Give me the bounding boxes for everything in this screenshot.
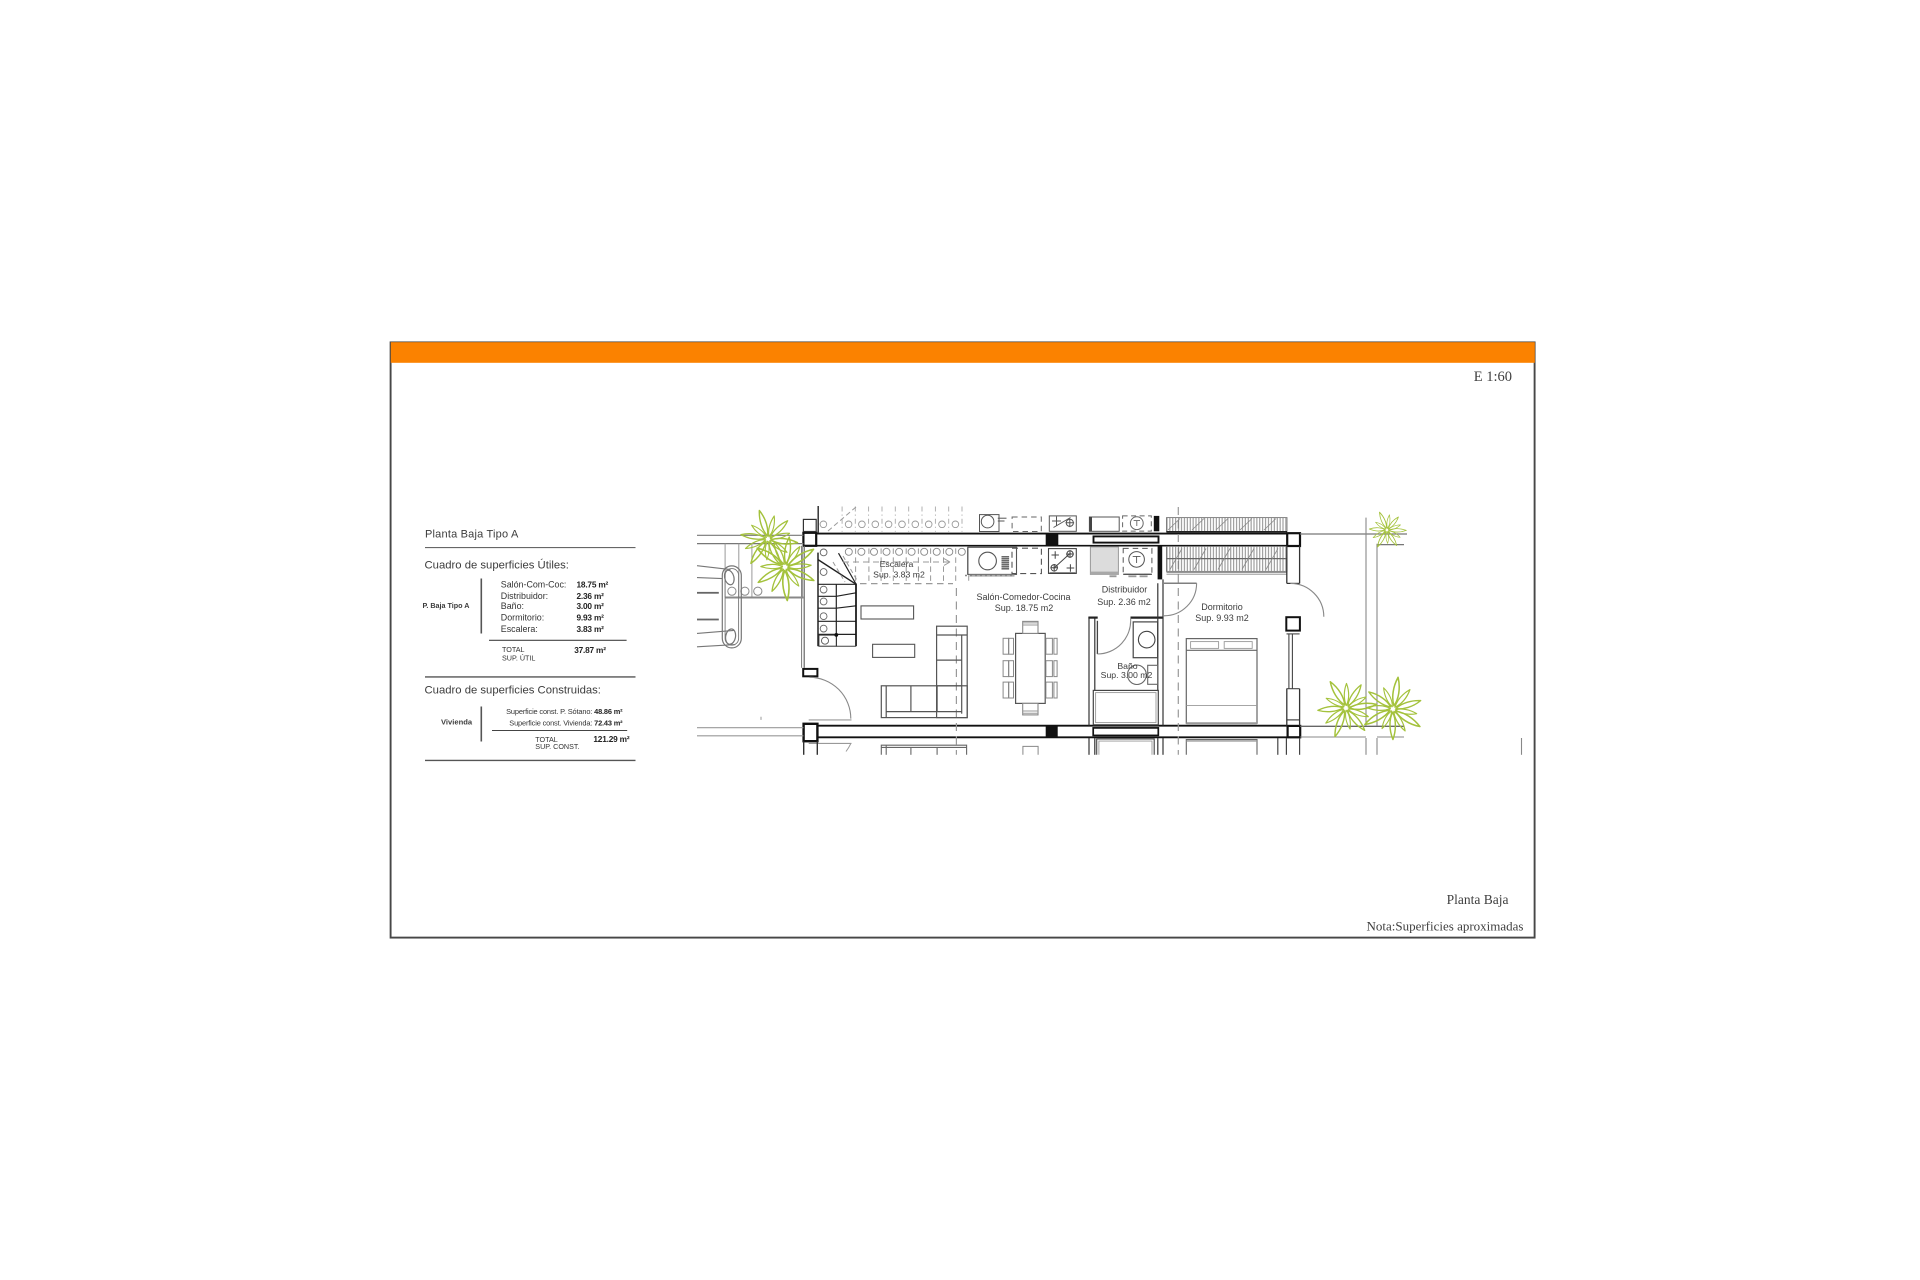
svg-text:9.93 m²: 9.93 m² [577,613,605,623]
svg-text:2.36 m²: 2.36 m² [577,591,605,601]
svg-text:Planta Baja: Planta Baja [1447,892,1509,907]
svg-text:Cuadro de superficies Útiles:: Cuadro de superficies Útiles: [425,559,569,572]
svg-text:Sup. 3.00 m2: Sup. 3.00 m2 [1101,670,1153,680]
svg-text:Cuadro de superficies Construi: Cuadro de superficies Construidas: [425,685,601,697]
svg-text:Dormitorio: Dormitorio [1201,602,1243,612]
svg-text:Distribuidor:: Distribuidor: [501,591,548,601]
svg-text:Distribuidor: Distribuidor [1102,584,1148,594]
svg-text:P. Baja Tipo A: P. Baja Tipo A [423,601,470,610]
svg-text:37.87 m²: 37.87 m² [574,645,606,655]
svg-text:Superficie const. Vivienda: 72: Superficie const. Vivienda: 72.43 m² [509,718,623,727]
svg-text:Superficie const. P. Sótano: 4: Superficie const. P. Sótano: 48.86 m² [506,707,623,716]
svg-text:Sup. 18.75 m2: Sup. 18.75 m2 [995,603,1054,613]
svg-text:Sup. 9.93 m2: Sup. 9.93 m2 [1195,613,1249,623]
svg-text:Dormitorio:: Dormitorio: [501,613,544,623]
svg-text:SUP. CONST.: SUP. CONST. [535,742,579,751]
svg-text:Sup. 2.36 m2: Sup. 2.36 m2 [1097,597,1151,607]
svg-text:Sup. 3.83 m2: Sup. 3.83 m2 [873,569,925,579]
svg-text:3.00 m²: 3.00 m² [577,601,605,611]
svg-text:Escalera: Escalera [880,559,914,569]
svg-text:Salón-Comedor-Cocina: Salón-Comedor-Cocina [976,592,1070,602]
svg-text:Escalera:: Escalera: [501,624,538,634]
svg-text:SUP. ÚTIL: SUP. ÚTIL [502,654,535,663]
svg-text:121.29 m²: 121.29 m² [593,734,629,744]
svg-text:Nota:Superficies aproximadas: Nota:Superficies aproximadas [1366,919,1523,934]
svg-text:18.75 m²: 18.75 m² [577,580,609,590]
svg-text:Baño:: Baño: [501,601,524,611]
svg-text:Salón-Com-Coc:: Salón-Com-Coc: [501,580,567,590]
svg-text:Vivienda: Vivienda [441,717,473,726]
svg-text:3.83 m²: 3.83 m² [577,624,605,634]
svg-text:E 1:60: E 1:60 [1474,369,1512,385]
svg-text:Planta Baja Tipo A: Planta Baja Tipo A [425,528,519,540]
